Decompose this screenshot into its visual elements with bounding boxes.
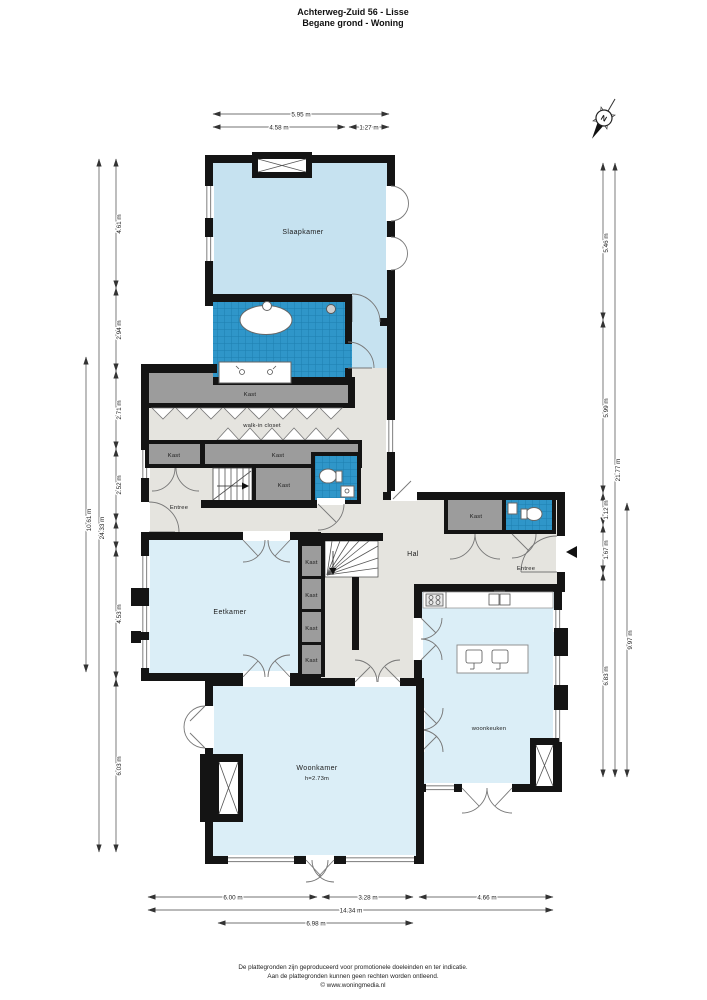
french-door-right-2[interactable] [386,237,408,270]
woonkamer-label: Woonkamer [296,765,337,772]
entree-label: Entree [170,505,188,511]
kast-band-left [149,373,213,403]
dim-label: 2.94 m [116,320,123,339]
dim-label: 4.53 m [116,604,123,623]
floorplan-canvas: Achterweg-Zuid 56 - Lisse Begane grond -… [0,0,707,1000]
wall-segment [348,377,355,403]
hal-label: Hal [407,551,419,558]
dim-label: 6.83 m [603,666,610,685]
woonkamer-fireplace-icon [200,754,243,822]
dim-label: 14.34 m [340,908,363,915]
kast-label: Kast [168,453,181,459]
entree-label: Entree [517,566,535,572]
dim-label: 6.03 m [116,756,123,775]
toilet-icon [320,469,337,483]
wall-segment [205,218,213,237]
wall-segment [387,221,395,237]
corridor-floor [321,592,422,682]
walk-in-closet-label: walk-in closet [242,423,281,429]
woonkamer-bottom-window-2 [346,855,414,865]
dim-label: 9.97 m [627,630,634,649]
room-woonkeuken: woonkeuken [413,588,568,813]
dim-label: 5.99 m [603,398,610,417]
room-eetkamer: Eetkamer Kast Kast Kast Kast [131,531,325,687]
toilet-icon [526,508,542,521]
kast-band [213,385,348,403]
eetkamer-window-3 [140,640,150,668]
walkin-window-right [386,420,396,452]
eetkamer-window-1 [140,556,150,588]
dim-label: 1.27 m [359,125,378,132]
window-pier [131,588,141,606]
wall-segment [387,306,395,420]
kitchen-window-3 [553,710,563,742]
dim-label: 3.28 m [358,895,377,902]
compass-icon: N [585,95,622,143]
dim-label: 4.66 m [477,895,496,902]
kast-label: Kast [272,453,285,459]
page-title: Achterweg-Zuid 56 - Lisse [297,7,409,17]
kast-label: Kast [305,560,318,566]
wall-segment [345,294,352,344]
stairs-winder[interactable] [321,533,383,577]
kast-label: Kast [305,658,318,664]
toilet-room-mid [311,452,361,504]
dim-label: 4.58 m [269,125,288,132]
dim-label: 4.61 m [116,214,123,233]
dim-label: 21.77 m [615,459,622,482]
eetkamer-walls [145,536,317,677]
dim-label: 24.33 m [99,517,106,540]
footer-line-2: Aan de plattegronden kunnen geen rechten… [267,973,438,980]
wall-segment [141,364,149,450]
eetkamer-window-2 [140,606,150,632]
dim-label: 2.52 m [116,475,123,494]
window-pier [554,685,568,710]
dim-label: 1.67 m [603,540,610,559]
dim-label: 2.71 m [116,400,123,419]
wall-segment [352,577,359,650]
stairs-straight[interactable] [213,468,252,502]
wall-segment [387,452,395,497]
vanity-icon [219,362,291,383]
window-pier [131,631,141,643]
woonkamer-french-doors[interactable] [184,706,214,748]
window-pier [554,628,568,656]
wall-segment [205,294,352,302]
eetkamer-label: Eetkamer [213,609,246,616]
wall-segment [141,364,217,373]
dim-label: 5.95 m [291,112,310,119]
dim-label: 1.12 m [603,500,610,519]
dim-label: 6.00 m [223,895,242,902]
toilet-sink-icon [508,503,517,514]
bathtub-faucet-icon [263,302,272,311]
woonkamer-bottom-window-1 [228,855,294,865]
room-label: Slaapkamer [282,229,324,236]
wall-segment [387,155,395,186]
shower-icon [327,305,336,314]
woonkamer-height-label: h=2.73m [305,776,329,782]
kast-label: Kast [470,514,483,520]
kast-label: Kast [244,392,257,398]
kitchen-window-2 [553,656,563,688]
woonkamer-eetkamer-opening [243,677,290,687]
dim-label: 6.98 m [306,921,325,928]
dim-label: 5.46 m [603,233,610,252]
wall-segment [557,492,565,536]
footer-line-3: © www.woningmedia.nl [320,981,385,989]
french-door-right-1[interactable] [386,186,409,221]
floorplan-page: Achterweg-Zuid 56 - Lisse Begane grond -… [0,0,707,1000]
page-subtitle: Begane grond - Woning [302,18,403,28]
entrance-arrow-icon [566,546,577,558]
kast-label: Kast [305,593,318,599]
footer-line-1: De plattegronden zijn geproduceerd voor … [238,964,468,971]
room-woonkamer: Woonkamer h=2.73m [184,660,420,882]
dim-label: 10.61 m [86,509,93,532]
landing-floor [347,302,391,372]
wall-segment [345,368,352,377]
wall-segment [205,155,213,186]
wall-segment [387,270,395,306]
kast-label: Kast [278,483,291,489]
wall-segment [141,478,149,502]
wall-segment [145,403,355,408]
woonkamer-bottom-doors[interactable] [306,855,334,882]
slaapkamer-window-left-1 [204,186,214,218]
wall-segment [321,533,383,541]
woonkeuken-label: woonkeuken [471,726,507,732]
kitchen-bottom-window [426,783,454,793]
toilet-sink-icon [341,486,354,497]
stove-icon [426,592,446,608]
kast-label: Kast [305,626,318,632]
wall-segment [201,500,317,508]
kitchen-bottom-doors[interactable] [462,783,512,813]
kitchen-fireplace-icon [530,738,559,792]
slaapkamer-window-left-2 [204,237,214,261]
